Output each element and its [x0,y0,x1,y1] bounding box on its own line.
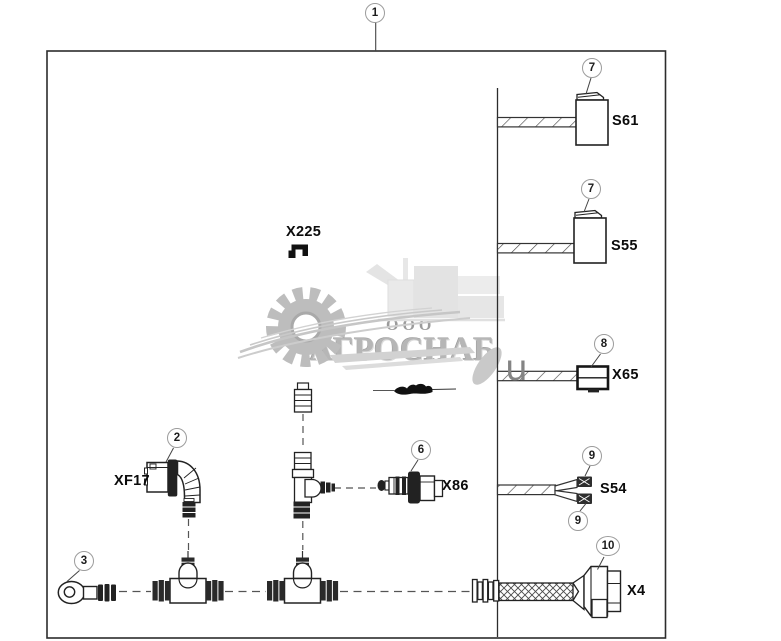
callout-7-s55: 7 [581,179,601,199]
s55-assembly [498,199,607,263]
x86-connector [378,460,443,504]
frame [47,51,666,638]
callout-1: 1 [365,3,385,23]
xf17-connector [145,448,201,518]
tee-connector-2 [267,551,338,603]
diagram-line-art [0,0,781,641]
label-s55: S55 [611,238,638,254]
watermark-gear-icon [273,294,339,360]
label-s54: S54 [600,481,627,497]
callout-3: 3 [74,551,94,571]
label-x65: X65 [612,367,639,383]
wiring-harness-diagram: ООО АГРОСНАБ u [0,0,781,641]
ring-terminal [58,571,116,604]
callout-9-upper: 9 [582,446,602,466]
center-branch [293,383,336,519]
x4-assembly [473,557,621,618]
label-xf17: XF17 [114,473,150,489]
label-x4: X4 [627,583,645,599]
callout-7-s61: 7 [582,58,602,78]
callout-2: 2 [167,428,187,448]
watermark-letter: u [505,348,528,389]
x225-clip [289,245,309,259]
callout-9-lower: 9 [568,511,588,531]
label-s61: S61 [612,113,639,129]
s61-assembly [498,78,609,145]
watermark-dark-mark [394,384,433,395]
label-x225: X225 [286,224,321,240]
vertical-dashed-links [189,414,377,550]
label-x86: X86 [442,478,469,494]
callout-6: 6 [411,440,431,460]
callout-10: 10 [596,536,620,556]
callout-8: 8 [594,334,614,354]
s54-assembly [498,466,593,511]
tee-connector-1 [153,551,224,603]
watermark-dark-mark-line-right [433,389,457,390]
